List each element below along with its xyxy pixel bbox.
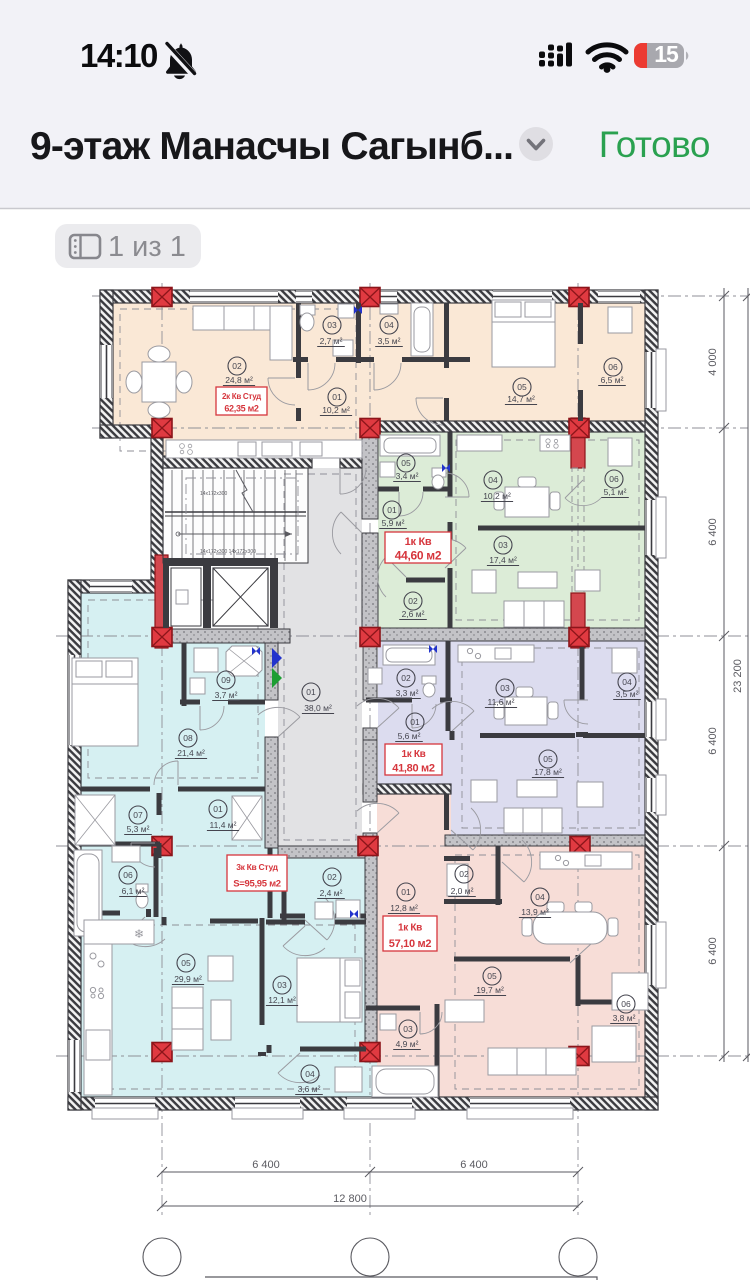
svg-text:1к Кв: 1к Кв: [405, 536, 432, 548]
svg-text:17,4 м²: 17,4 м²: [489, 555, 517, 565]
svg-text:04: 04: [535, 892, 545, 902]
svg-text:13,9 м²: 13,9 м²: [521, 907, 549, 917]
svg-text:62,35 м2: 62,35 м2: [224, 404, 259, 414]
svg-text:44,60 м2: 44,60 м2: [395, 548, 442, 562]
svg-text:❄: ❄: [134, 927, 144, 941]
svg-text:03: 03: [327, 320, 337, 330]
svg-text:6 400: 6 400: [460, 1159, 488, 1171]
svg-text:05: 05: [181, 958, 191, 968]
svg-text:6,1 м²: 6,1 м²: [122, 886, 145, 896]
svg-text:5,1 м²: 5,1 м²: [604, 487, 627, 497]
svg-text:6 400: 6 400: [252, 1159, 280, 1171]
svg-text:04: 04: [622, 677, 632, 687]
svg-text:2,0 м²: 2,0 м²: [451, 886, 474, 896]
svg-text:05: 05: [487, 971, 497, 981]
svg-text:3,5 м²: 3,5 м²: [378, 336, 401, 346]
svg-text:Готово: Готово: [599, 124, 710, 165]
svg-text:3,4 м²: 3,4 м²: [396, 471, 419, 481]
svg-text:06: 06: [608, 362, 618, 372]
svg-text:03: 03: [277, 980, 287, 990]
svg-text:6 400: 6 400: [707, 727, 719, 755]
svg-text:3,6 м²: 3,6 м²: [298, 1084, 321, 1094]
svg-text:57,10 м2: 57,10 м2: [389, 938, 432, 950]
svg-text:03: 03: [500, 683, 510, 693]
svg-text:01: 01: [306, 687, 316, 697]
svg-text:11,4 м²: 11,4 м²: [210, 820, 237, 830]
svg-text:03: 03: [498, 540, 508, 550]
svg-text:5,3 м²: 5,3 м²: [127, 824, 150, 834]
svg-text:06: 06: [621, 999, 631, 1009]
svg-text:10,2 м²: 10,2 м²: [322, 405, 350, 415]
svg-text:11,6 м²: 11,6 м²: [488, 697, 515, 707]
svg-text:09: 09: [221, 675, 231, 685]
svg-text:1к Кв: 1к Кв: [401, 749, 425, 760]
svg-text:4 000: 4 000: [707, 348, 719, 376]
svg-text:41,80 м2: 41,80 м2: [392, 762, 435, 774]
svg-text:04: 04: [305, 1069, 315, 1079]
svg-text:02: 02: [459, 869, 469, 879]
svg-text:1 из 1: 1 из 1: [108, 231, 186, 263]
svg-text:3,5 м²: 3,5 м²: [616, 689, 639, 699]
svg-text:2,4 м²: 2,4 м²: [320, 888, 343, 898]
svg-text:2,7 м²: 2,7 м²: [320, 336, 343, 346]
svg-text:4,9 м²: 4,9 м²: [396, 1039, 419, 1049]
svg-text:2к Кв Студ: 2к Кв Студ: [222, 392, 261, 401]
svg-text:6 400: 6 400: [707, 937, 719, 965]
svg-text:01: 01: [213, 804, 223, 814]
svg-text:2,6 м²: 2,6 м²: [402, 609, 425, 619]
svg-text:29,9 м²: 29,9 м²: [174, 974, 202, 984]
svg-text:24,8 м²: 24,8 м²: [225, 375, 253, 385]
svg-text:5,6 м²: 5,6 м²: [398, 731, 421, 741]
svg-text:04: 04: [384, 320, 394, 330]
svg-text:14x172x300 14x172x300: 14x172x300 14x172x300: [200, 549, 256, 555]
svg-text:01: 01: [332, 392, 342, 402]
svg-text:9-этаж Манасчы Сагынб...: 9-этаж Манасчы Сагынб...: [30, 125, 513, 168]
svg-text:06: 06: [123, 870, 133, 880]
svg-text:23 200: 23 200: [732, 659, 744, 693]
svg-text:01: 01: [401, 887, 411, 897]
svg-text:05: 05: [517, 382, 527, 392]
svg-text:14x172x300: 14x172x300: [200, 491, 227, 497]
svg-text:02: 02: [408, 596, 418, 606]
svg-text:02: 02: [401, 673, 411, 683]
svg-text:38,0 м²: 38,0 м²: [304, 703, 332, 713]
svg-text:05: 05: [401, 458, 411, 468]
svg-text:17,8 м²: 17,8 м²: [534, 767, 562, 777]
svg-text:01: 01: [410, 717, 420, 727]
svg-text:08: 08: [183, 733, 193, 743]
svg-text:5,9 м²: 5,9 м²: [382, 518, 405, 528]
svg-text:6 400: 6 400: [707, 518, 719, 546]
svg-text:12,1 м²: 12,1 м²: [268, 995, 296, 1005]
svg-text:1к Кв: 1к Кв: [398, 923, 422, 934]
svg-text:10,2 м²: 10,2 м²: [483, 491, 511, 501]
svg-text:14,7 м²: 14,7 м²: [507, 394, 535, 404]
svg-text:12 800: 12 800: [333, 1193, 367, 1205]
svg-text:19,7 м²: 19,7 м²: [476, 985, 504, 995]
svg-text:07: 07: [133, 810, 143, 820]
svg-text:3,7 м²: 3,7 м²: [215, 690, 238, 700]
svg-text:03: 03: [403, 1024, 413, 1034]
svg-text:3,8 м²: 3,8 м²: [613, 1013, 636, 1023]
svg-text:04: 04: [488, 475, 498, 485]
svg-text:06: 06: [609, 474, 619, 484]
svg-text:3,3 м²: 3,3 м²: [396, 688, 419, 698]
svg-text:6,5 м²: 6,5 м²: [601, 375, 624, 385]
svg-text:02: 02: [327, 872, 337, 882]
svg-text:02: 02: [232, 361, 242, 371]
svg-text:15: 15: [654, 41, 679, 67]
svg-text:12,8 м²: 12,8 м²: [390, 903, 418, 913]
svg-text:S=95,95 м2: S=95,95 м2: [233, 879, 281, 890]
svg-text:3к Кв Студ: 3к Кв Студ: [236, 862, 278, 872]
svg-text:21,4 м²: 21,4 м²: [177, 748, 205, 758]
svg-text:05: 05: [543, 754, 553, 764]
svg-text:01: 01: [387, 505, 397, 515]
svg-text:14:10: 14:10: [80, 37, 157, 74]
